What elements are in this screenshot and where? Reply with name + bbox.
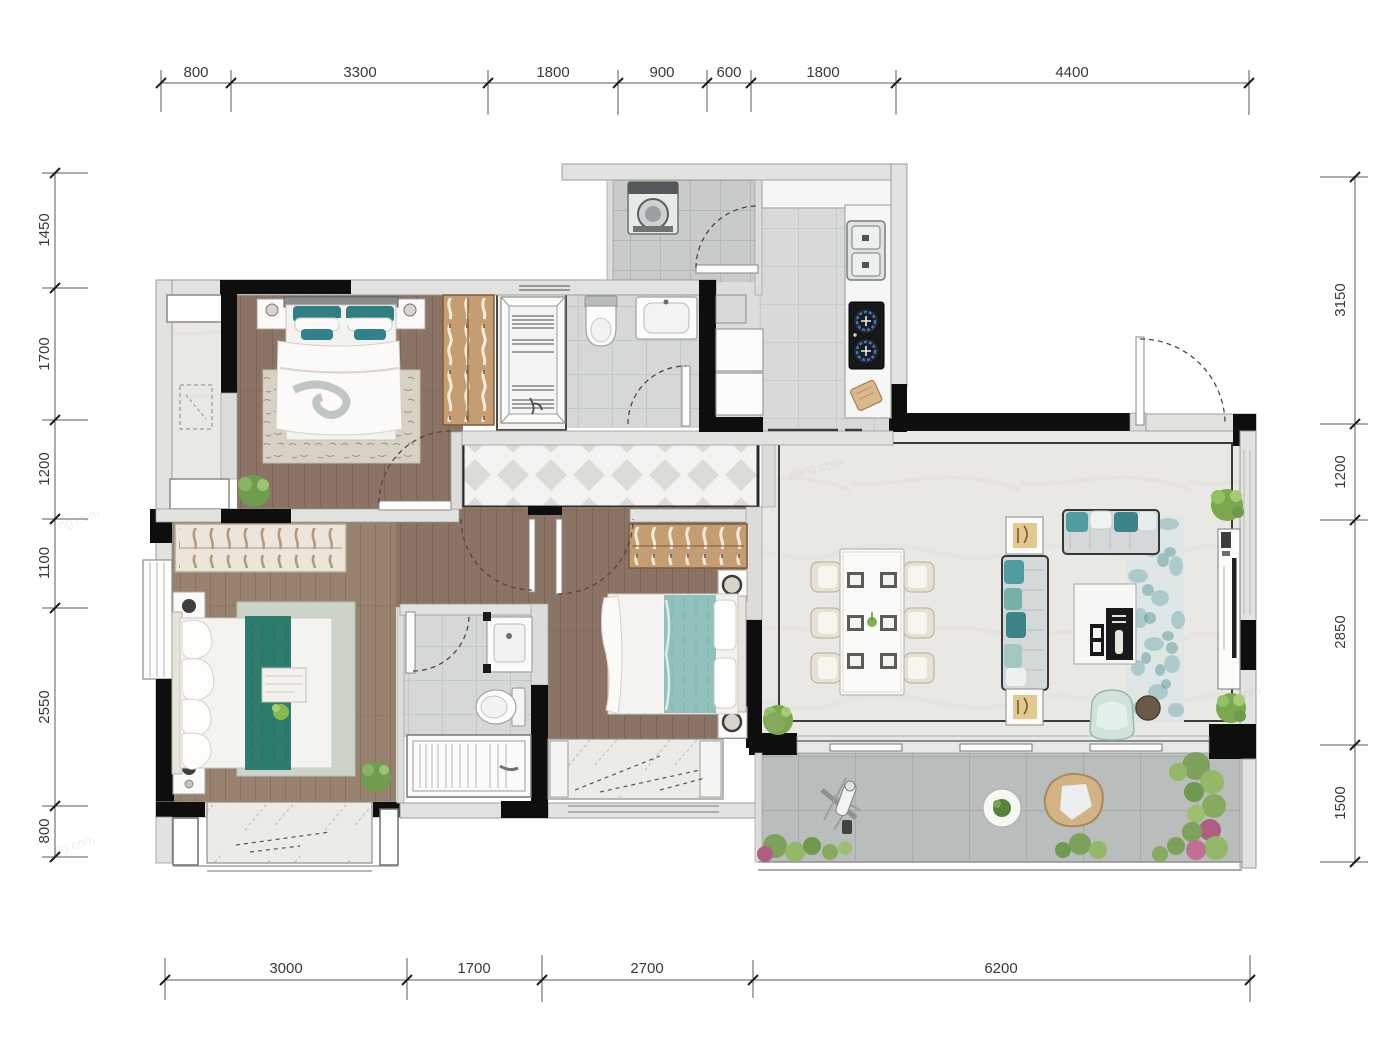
svg-text:1800: 1800 xyxy=(806,64,839,81)
svg-text:900: 900 xyxy=(649,64,674,81)
svg-text:1500: 1500 xyxy=(1332,786,1349,819)
svg-text:6200: 6200 xyxy=(984,960,1017,977)
svg-text:1700: 1700 xyxy=(36,337,53,370)
svg-text:2550: 2550 xyxy=(36,690,53,723)
svg-text:3150: 3150 xyxy=(1332,283,1349,316)
svg-text:1100: 1100 xyxy=(36,547,53,579)
svg-text:1800: 1800 xyxy=(536,64,569,81)
svg-text:600: 600 xyxy=(716,64,741,81)
svg-text:2850: 2850 xyxy=(1332,615,1349,648)
svg-text:4400: 4400 xyxy=(1055,64,1088,81)
svg-text:1700: 1700 xyxy=(457,960,490,977)
svg-text:800: 800 xyxy=(183,64,208,81)
svg-text:3300: 3300 xyxy=(343,64,376,81)
svg-text:1200: 1200 xyxy=(36,452,53,485)
svg-text:3000: 3000 xyxy=(269,960,302,977)
svg-text:800: 800 xyxy=(36,818,53,843)
svg-text:2700: 2700 xyxy=(630,960,663,977)
svg-text:1450: 1450 xyxy=(36,213,53,246)
svg-text:1200: 1200 xyxy=(1332,455,1349,488)
